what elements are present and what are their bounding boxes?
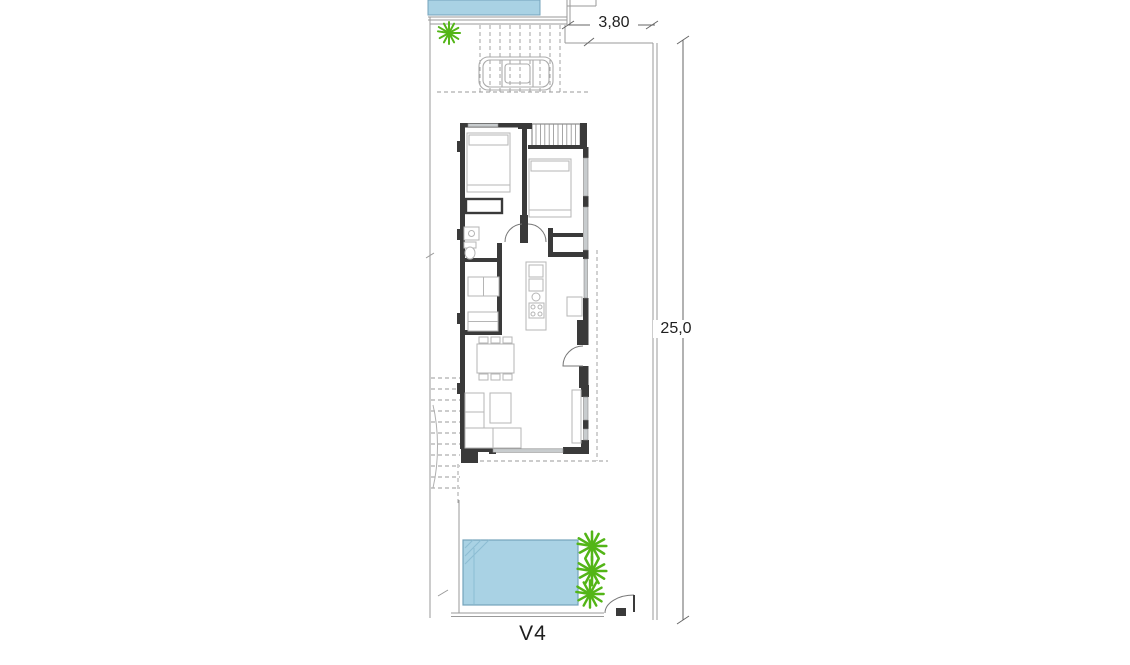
dimension-depth-label: 25,0 (653, 320, 699, 338)
site-plan-drawing (0, 0, 1130, 665)
plant-icon (576, 580, 603, 607)
plant-icon (438, 22, 460, 44)
swimming-pool (463, 540, 578, 605)
door-swing-icon (563, 346, 583, 366)
plant-icon (578, 557, 607, 586)
neighbor-pool (428, 0, 540, 15)
exterior-stairs (431, 378, 460, 488)
door-swing-icon (528, 224, 546, 242)
garden-gate (605, 595, 634, 616)
floor-plan-page: { "plan": { "unit_label": "V4", "dimensi… (0, 0, 1130, 665)
exterior-stair-rail (433, 405, 438, 488)
dimension-width-label: 3,80 (590, 14, 638, 32)
carport-dashed-lines (437, 25, 590, 92)
door-swing-icon (505, 224, 522, 242)
unit-label: V4 (503, 622, 563, 645)
